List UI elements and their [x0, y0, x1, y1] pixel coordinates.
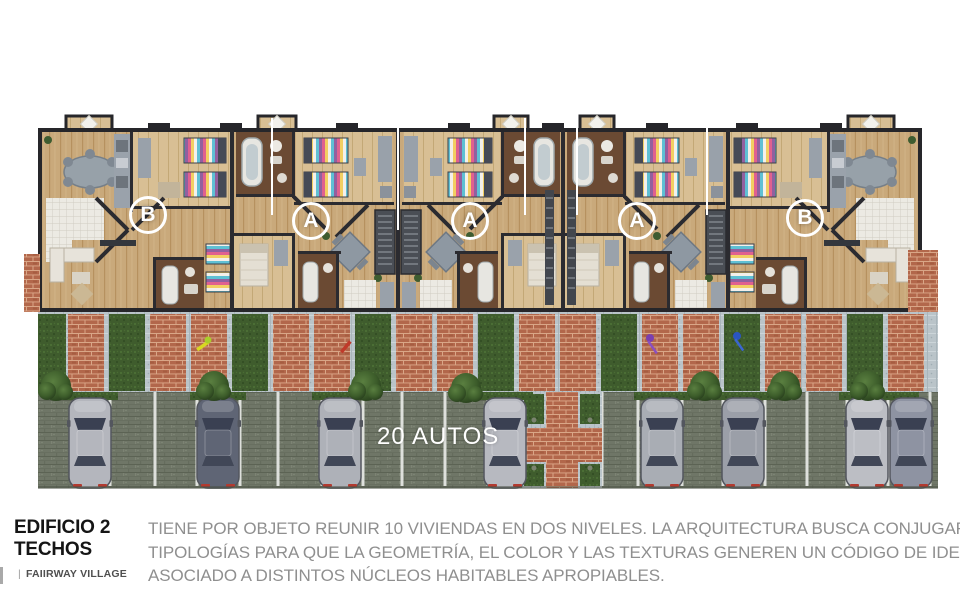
- unit-badge-b-left: B: [129, 196, 167, 234]
- car: [195, 398, 241, 488]
- unit-badge-label: B: [140, 203, 155, 227]
- car: [844, 398, 890, 488]
- unit-badge-a-3: A: [618, 202, 656, 240]
- unit-badge-label: A: [629, 209, 644, 233]
- site-plan-svg: [0, 0, 960, 492]
- car: [317, 398, 363, 488]
- unit-badge-b-right: B: [786, 199, 824, 237]
- unit-badge-label: B: [797, 206, 812, 230]
- title-line-1: EDIFICIO 2: [14, 517, 110, 539]
- description-line-2: TIPOLOGÍAS PARA QUE LA GEOMETRÍA, EL COL…: [148, 541, 960, 565]
- car: [720, 398, 766, 488]
- page-title: EDIFICIO 2 TECHOS: [14, 517, 110, 561]
- entry-path: [522, 392, 602, 488]
- unit-badge-a-2: A: [451, 202, 489, 240]
- title-line-2: TECHOS: [14, 539, 110, 561]
- parking-count-label: 20 AUTOS: [377, 423, 499, 451]
- page: B A A A B 20 AUTOS EDIFICIO 2 TECHOS |FA…: [0, 0, 960, 600]
- page-edge-mark: [0, 567, 3, 584]
- description: TIENE POR OBJETO REUNIR 10 VIVIENDAS EN …: [148, 517, 960, 588]
- brand-separator: |: [18, 568, 21, 580]
- car: [639, 398, 685, 488]
- site-plan-render: B A A A B 20 AUTOS: [0, 0, 960, 492]
- description-line-1: TIENE POR OBJETO REUNIR 10 VIVIENDAS EN …: [148, 517, 960, 541]
- unit-badge-label: A: [462, 209, 477, 233]
- side-brick-left: [24, 254, 40, 312]
- brand: |FAIIRWAY VILLAGE: [18, 568, 127, 580]
- description-line-3: ASOCIADO A DISTINTOS NÚCLEOS HABITABLES …: [148, 564, 960, 588]
- unit-badge-a-1: A: [292, 202, 330, 240]
- patio-strip: [38, 312, 938, 392]
- unit-badge-label: A: [303, 209, 318, 233]
- footer: EDIFICIO 2 TECHOS |FAIIRWAY VILLAGE TIEN…: [0, 492, 960, 600]
- car: [67, 398, 113, 488]
- side-brick-right: [908, 250, 938, 312]
- brand-name: FAIIRWAY VILLAGE: [26, 568, 127, 580]
- car: [888, 398, 934, 488]
